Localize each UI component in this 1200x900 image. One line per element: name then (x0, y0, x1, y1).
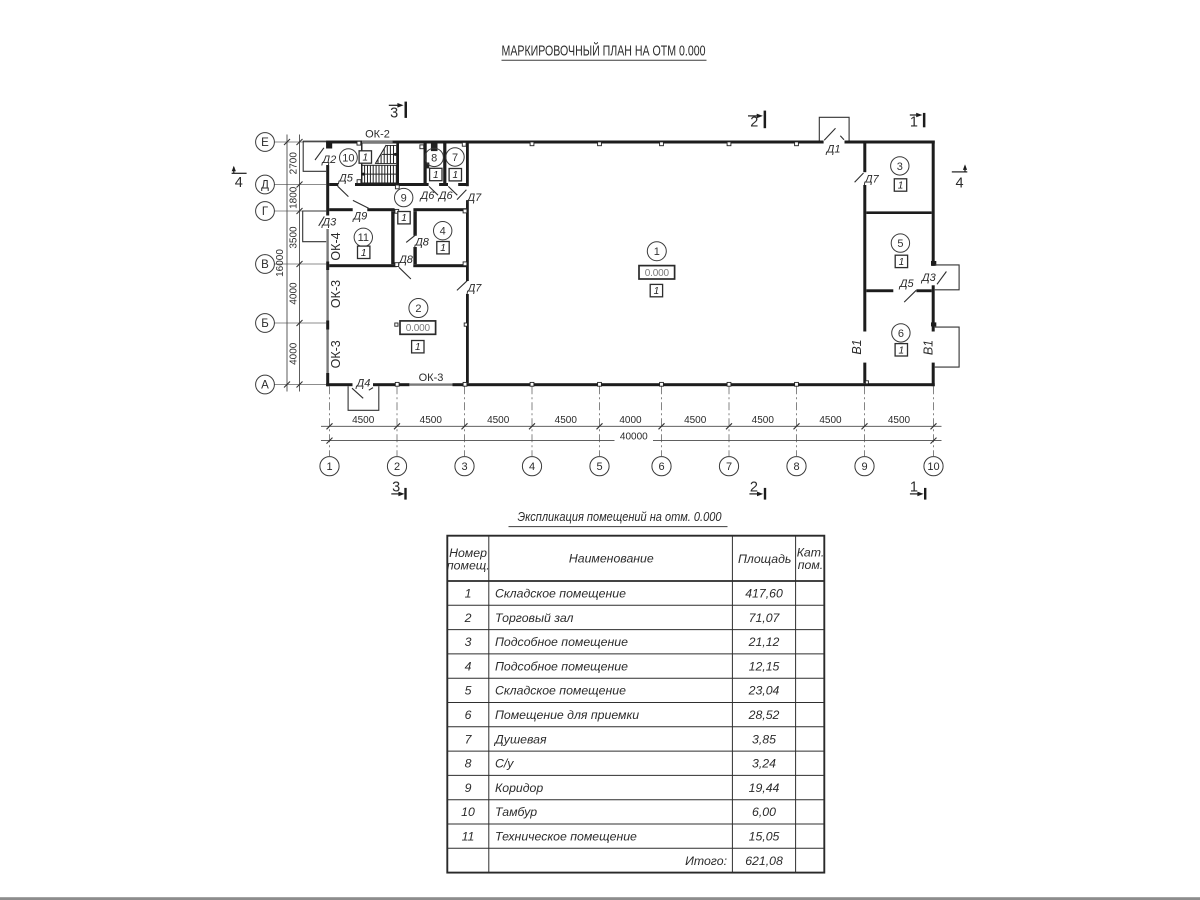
svg-text:8: 8 (431, 152, 437, 164)
svg-text:Итого:: Итого: (685, 854, 727, 868)
svg-text:6,00: 6,00 (752, 805, 776, 819)
svg-text:5: 5 (596, 461, 602, 473)
svg-text:4500: 4500 (555, 415, 578, 426)
svg-text:1: 1 (910, 480, 918, 496)
svg-text:621,08: 621,08 (745, 854, 783, 868)
svg-text:1: 1 (326, 461, 332, 473)
svg-text:С/у: С/у (495, 757, 514, 771)
svg-text:5: 5 (465, 684, 472, 698)
svg-text:Д1: Д1 (825, 143, 841, 155)
svg-text:Наименование: Наименование (569, 552, 654, 566)
svg-text:Д5: Д5 (337, 172, 354, 184)
svg-text:4500: 4500 (819, 415, 842, 426)
svg-text:Тамбур: Тамбур (495, 805, 537, 819)
svg-text:10: 10 (927, 461, 939, 473)
svg-text:2: 2 (750, 114, 758, 130)
svg-text:1: 1 (899, 345, 905, 356)
svg-text:4500: 4500 (888, 415, 911, 426)
svg-text:Площадь: Площадь (738, 552, 791, 566)
svg-text:МАРКИРОВОЧНЫЙ ПЛАН НА ОТМ 0.00: МАРКИРОВОЧНЫЙ ПЛАН НА ОТМ 0.000 (502, 42, 706, 60)
svg-text:В: В (261, 259, 269, 271)
svg-text:пом.: пом. (798, 558, 823, 572)
svg-text:1: 1 (440, 243, 446, 254)
svg-text:3500: 3500 (289, 226, 300, 249)
svg-text:Д2: Д2 (320, 154, 336, 166)
svg-text:11: 11 (358, 232, 369, 244)
svg-text:6: 6 (658, 461, 664, 473)
svg-text:Помещение для приемки: Помещение для приемки (495, 708, 639, 722)
svg-text:10: 10 (342, 153, 354, 165)
svg-text:1: 1 (654, 286, 660, 297)
svg-text:1: 1 (415, 342, 421, 353)
svg-text:1: 1 (401, 213, 407, 224)
svg-text:4000: 4000 (619, 415, 642, 426)
svg-text:7: 7 (726, 461, 732, 473)
svg-text:1: 1 (654, 246, 660, 258)
svg-text:Е: Е (261, 137, 269, 149)
svg-text:ОК-4: ОК-4 (329, 232, 343, 260)
svg-text:4500: 4500 (487, 415, 510, 426)
svg-text:Душевая: Душевая (493, 732, 547, 746)
svg-text:Д7: Д7 (466, 283, 483, 295)
svg-text:21,12: 21,12 (748, 635, 780, 649)
svg-text:3: 3 (897, 161, 903, 173)
svg-text:Д8: Д8 (397, 254, 414, 266)
svg-text:6: 6 (465, 708, 472, 722)
svg-text:А: А (261, 380, 269, 392)
svg-text:3: 3 (461, 461, 467, 473)
svg-text:Экспликация помещений на отм.: Экспликация помещений на отм. 0.000 (518, 509, 723, 524)
svg-text:Подсобное помещение: Подсобное помещение (495, 659, 628, 673)
svg-text:Подсобное помещение: Подсобное помещение (495, 635, 628, 649)
svg-text:4500: 4500 (684, 415, 707, 426)
svg-text:6: 6 (898, 328, 904, 340)
svg-text:3,85: 3,85 (752, 732, 776, 746)
svg-text:ОК-3: ОК-3 (329, 280, 343, 308)
svg-text:4500: 4500 (352, 415, 375, 426)
svg-text:Д5: Д5 (898, 278, 915, 290)
svg-text:40000: 40000 (620, 432, 648, 443)
svg-text:11: 11 (462, 830, 475, 844)
svg-text:4: 4 (235, 175, 243, 191)
svg-text:Торговый зал: Торговый зал (495, 611, 574, 625)
svg-text:Д7: Д7 (465, 192, 482, 204)
svg-text:Д7: Д7 (863, 173, 880, 185)
svg-text:7: 7 (465, 732, 473, 746)
svg-text:В1: В1 (922, 340, 936, 355)
svg-text:1: 1 (433, 170, 439, 181)
svg-text:Техническое помещение: Техническое помещение (495, 830, 637, 844)
svg-text:ОК-2: ОК-2 (365, 129, 390, 141)
svg-text:Складское помещение: Складское помещение (495, 684, 626, 698)
svg-text:4: 4 (956, 175, 964, 191)
svg-text:7: 7 (452, 152, 458, 164)
svg-text:Складское помещение: Складское помещение (495, 587, 626, 601)
svg-text:1: 1 (361, 248, 367, 259)
svg-text:Д3: Д3 (920, 272, 937, 284)
svg-text:Д4: Д4 (354, 377, 370, 389)
svg-text:4000: 4000 (289, 342, 300, 365)
svg-text:2: 2 (464, 611, 472, 625)
svg-text:1: 1 (453, 170, 459, 181)
svg-text:3: 3 (465, 635, 472, 649)
svg-text:1800: 1800 (289, 186, 300, 209)
svg-text:12,15: 12,15 (749, 659, 780, 673)
svg-text:2700: 2700 (289, 152, 300, 175)
svg-text:5: 5 (897, 238, 903, 250)
svg-text:Д3: Д3 (320, 217, 337, 229)
svg-text:8: 8 (465, 757, 472, 771)
svg-text:1: 1 (898, 181, 904, 192)
svg-text:4000: 4000 (289, 282, 300, 305)
svg-text:2: 2 (415, 303, 421, 315)
svg-text:19,44: 19,44 (749, 781, 780, 795)
svg-text:4500: 4500 (420, 415, 443, 426)
svg-text:0.000: 0.000 (406, 323, 431, 334)
svg-text:15,05: 15,05 (749, 830, 780, 844)
svg-text:23,04: 23,04 (748, 684, 780, 698)
svg-text:1: 1 (899, 257, 905, 268)
svg-text:Д9: Д9 (351, 211, 367, 223)
svg-text:помещ.: помещ. (447, 559, 490, 573)
svg-text:1: 1 (363, 153, 369, 164)
svg-text:9: 9 (465, 781, 472, 795)
svg-text:3: 3 (390, 106, 398, 122)
svg-text:3,24: 3,24 (752, 757, 776, 771)
svg-text:4: 4 (440, 226, 446, 238)
svg-text:9: 9 (861, 461, 867, 473)
svg-text:2: 2 (394, 461, 400, 473)
svg-text:2: 2 (750, 480, 758, 496)
svg-text:71,07: 71,07 (749, 611, 781, 625)
svg-text:ОК-3: ОК-3 (329, 340, 343, 368)
svg-text:Д: Д (261, 180, 269, 192)
svg-text:16000: 16000 (275, 249, 286, 277)
svg-text:9: 9 (401, 193, 407, 205)
svg-text:Г: Г (262, 206, 269, 218)
svg-text:ОК-3: ОК-3 (419, 372, 444, 384)
svg-text:Б: Б (261, 318, 269, 330)
svg-text:В1: В1 (850, 339, 864, 354)
svg-text:1: 1 (910, 115, 918, 131)
svg-text:0.000: 0.000 (645, 268, 670, 279)
svg-text:28,52: 28,52 (748, 708, 780, 722)
svg-text:1: 1 (465, 587, 472, 601)
svg-text:Д8: Д8 (413, 237, 430, 249)
svg-text:Коридор: Коридор (495, 781, 543, 795)
svg-text:10: 10 (461, 805, 475, 819)
svg-text:417,60: 417,60 (745, 587, 783, 601)
svg-text:4500: 4500 (752, 415, 775, 426)
svg-text:Д6: Д6 (418, 190, 435, 202)
svg-text:4: 4 (529, 461, 535, 473)
svg-text:8: 8 (793, 461, 799, 473)
svg-text:Д6: Д6 (437, 190, 454, 202)
svg-text:3: 3 (392, 480, 400, 496)
svg-text:4: 4 (465, 659, 472, 673)
